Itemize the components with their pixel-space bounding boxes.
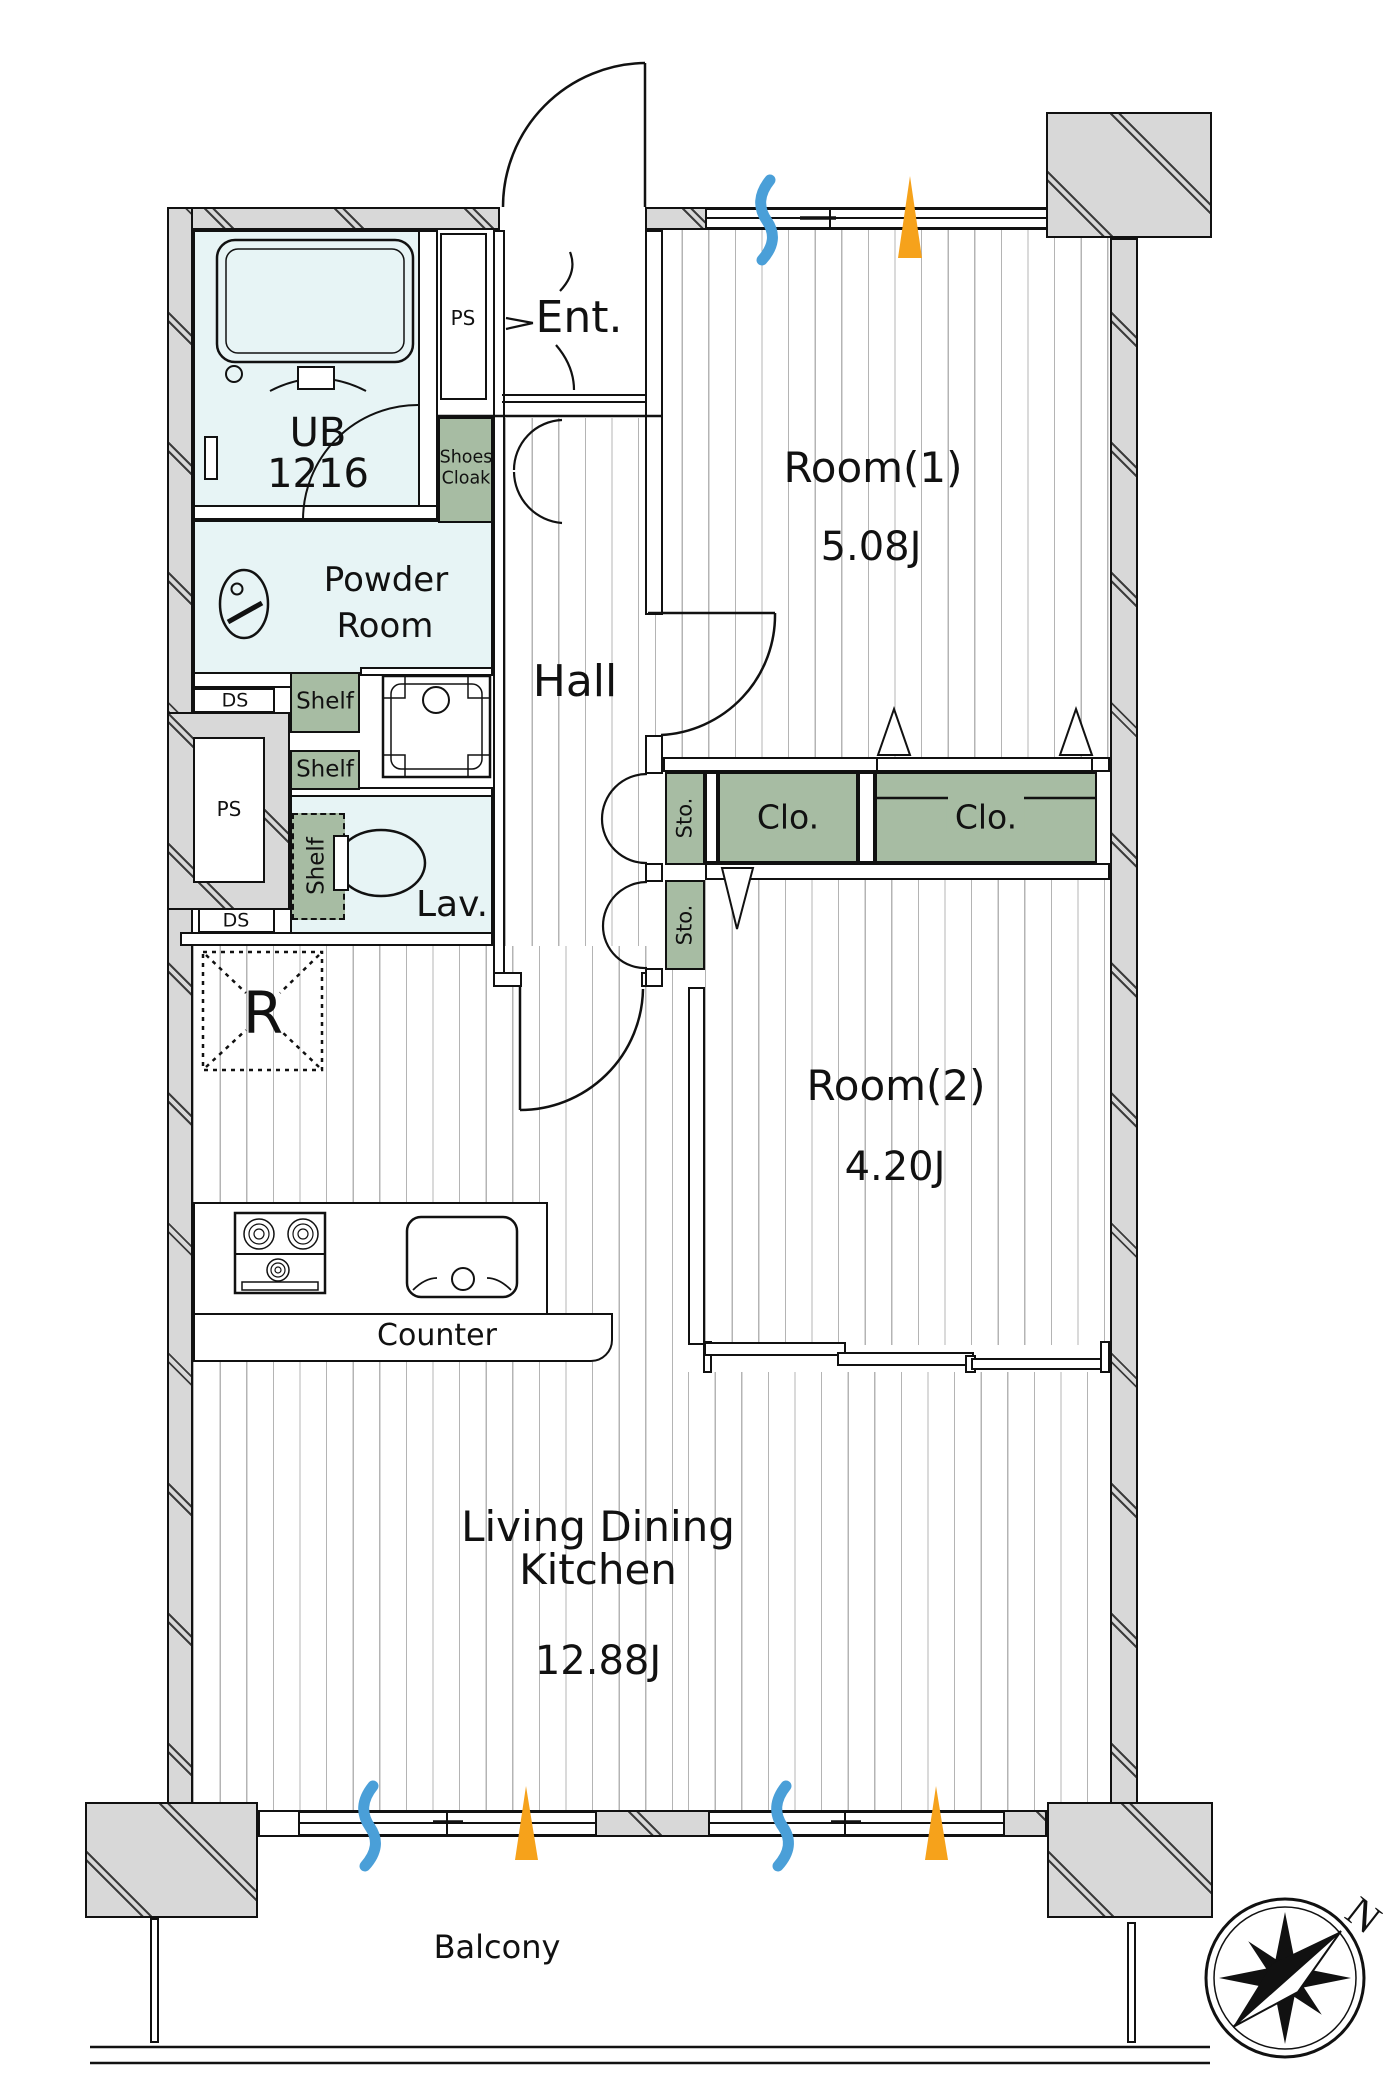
powder-room-label-line1: Powder bbox=[324, 563, 448, 597]
unit-bath-label: UB bbox=[290, 413, 347, 453]
balcony-edge-lines bbox=[90, 2047, 1210, 2063]
powder-room-label-line2: Room bbox=[337, 609, 434, 643]
storage-label-2: Sto. bbox=[675, 905, 696, 946]
closet-label-1: Clo. bbox=[757, 801, 819, 834]
unit-bath-size-label: 1216 bbox=[267, 454, 369, 494]
pipe-space-label-top: PS bbox=[451, 308, 476, 328]
closet2-sliding-door bbox=[875, 758, 1097, 798]
floorplan-drawing bbox=[0, 0, 1397, 2095]
kitchen-sink-icon bbox=[407, 1217, 517, 1297]
lavatory-label: Lav. bbox=[416, 887, 488, 923]
room1-size-label: 5.08J bbox=[821, 527, 922, 567]
ldk-size-label: 12.88J bbox=[535, 1641, 661, 1681]
ldk-label-line2: Kitchen bbox=[519, 1549, 677, 1591]
counter-label: Counter bbox=[377, 1321, 497, 1351]
floor-plan: Ent. UB 1216 PS Shoes Cloak Powder Room … bbox=[0, 0, 1397, 2095]
washing-machine-icon bbox=[383, 676, 490, 777]
balcony-label: Balcony bbox=[434, 1931, 561, 1963]
room1-door-arc bbox=[648, 613, 775, 735]
room2-label: Room(2) bbox=[806, 1065, 985, 1107]
shoes-cloak-door-arcs bbox=[514, 420, 562, 523]
refrigerator-label: R bbox=[243, 984, 283, 1042]
storage2-door-arcs bbox=[603, 882, 647, 968]
shelf-label-3: Shelf bbox=[306, 837, 329, 895]
room1-label: Room(1) bbox=[783, 447, 962, 489]
vent-symbols bbox=[364, 180, 789, 1866]
entrance-door-arc bbox=[503, 63, 645, 207]
room2-sliding-partition bbox=[704, 1342, 1109, 1372]
toilet-icon bbox=[334, 830, 425, 896]
shelf-label-1: Shelf bbox=[296, 691, 354, 714]
storage1-door-arcs bbox=[602, 774, 647, 863]
sun-symbols bbox=[515, 176, 948, 1860]
powder-sink-icon bbox=[220, 570, 268, 638]
closet-label-2: Clo. bbox=[947, 801, 1025, 834]
entrance-label: Ent. bbox=[536, 296, 623, 340]
shoes-cloak-label-line1: Shoes bbox=[440, 449, 493, 467]
storage-label-1: Sto. bbox=[675, 798, 696, 839]
pipe-space-label-left: PS bbox=[217, 799, 242, 819]
shoes-cloak-label-line2: Cloak bbox=[442, 470, 491, 488]
stove-icon bbox=[235, 1213, 325, 1293]
ldk-door-arc bbox=[520, 987, 643, 1110]
entrance-step-lines bbox=[438, 395, 663, 416]
shelf-label-2: Shelf bbox=[296, 759, 354, 782]
ldk-label-line1: Living Dining bbox=[461, 1506, 735, 1548]
hall-label: Hall bbox=[533, 660, 618, 704]
duct-space-label-2: DS bbox=[223, 912, 250, 931]
room2-size-label: 4.20J bbox=[845, 1147, 946, 1187]
duct-space-label-1: DS bbox=[222, 692, 249, 711]
